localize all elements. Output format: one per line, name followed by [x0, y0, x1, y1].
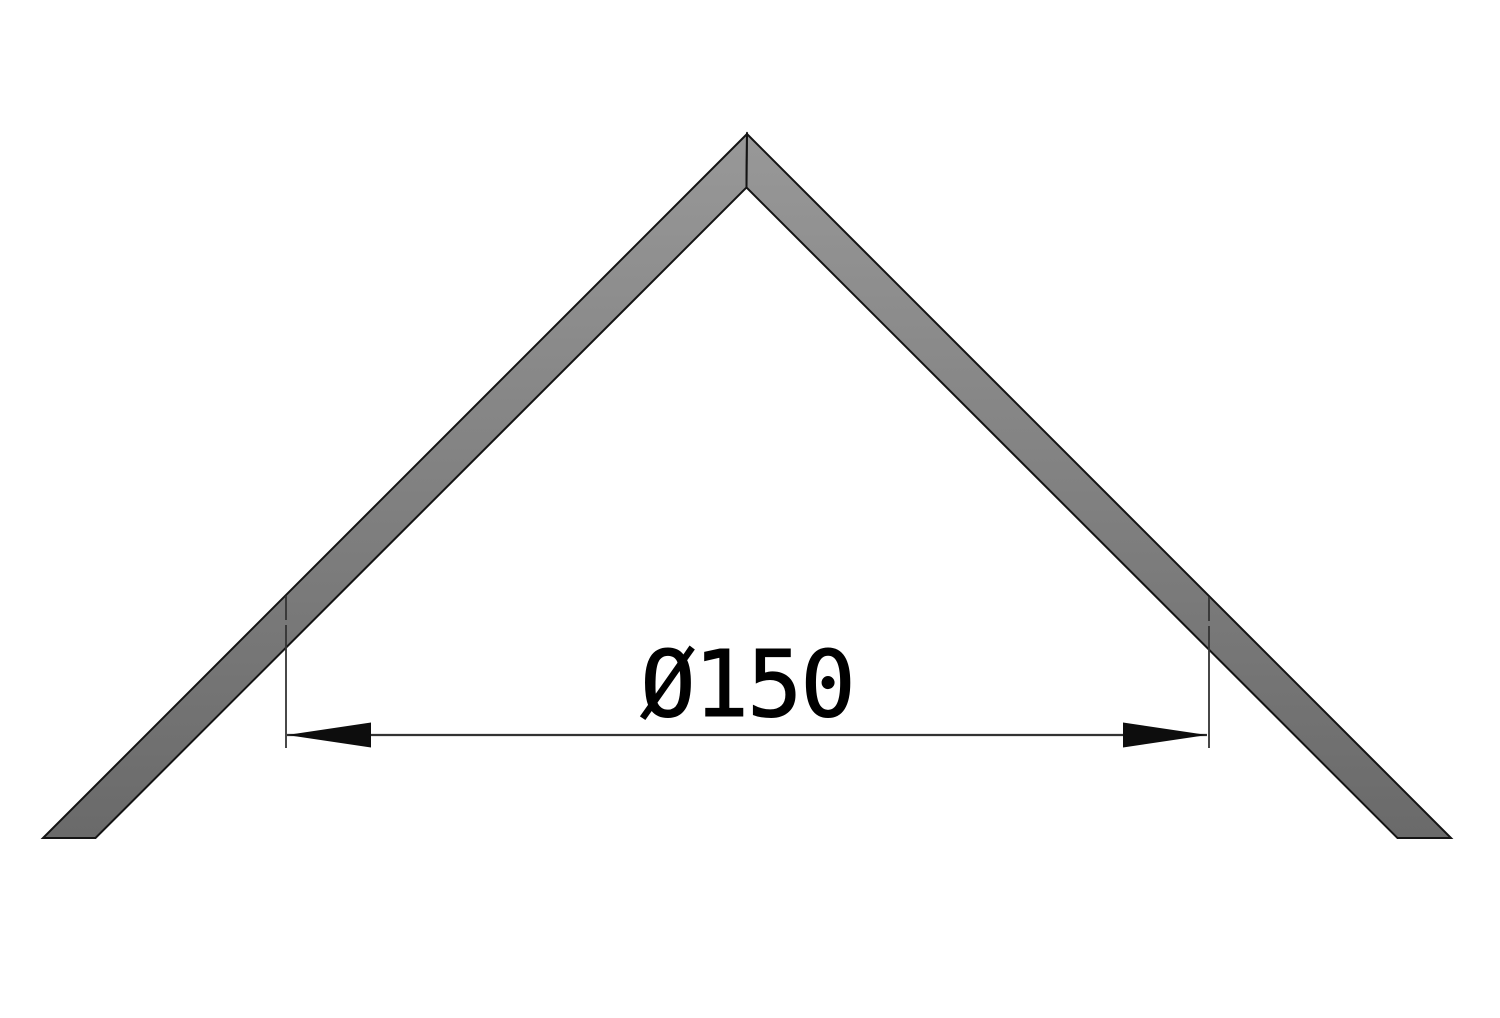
dimension-arrowhead-right-icon [1123, 723, 1207, 748]
dimension-annotation: Ø150 [286, 596, 1209, 748]
cad-drawing-canvas: Ø150 [0, 0, 1500, 1018]
dimension-label-group: Ø150 [640, 631, 854, 738]
apex-miter-seam [747, 134, 748, 188]
drawing-page: Ø150 [0, 0, 1500, 1018]
dimension-arrowhead-left-icon [287, 723, 371, 748]
dimension-label: Ø150 [640, 631, 854, 738]
